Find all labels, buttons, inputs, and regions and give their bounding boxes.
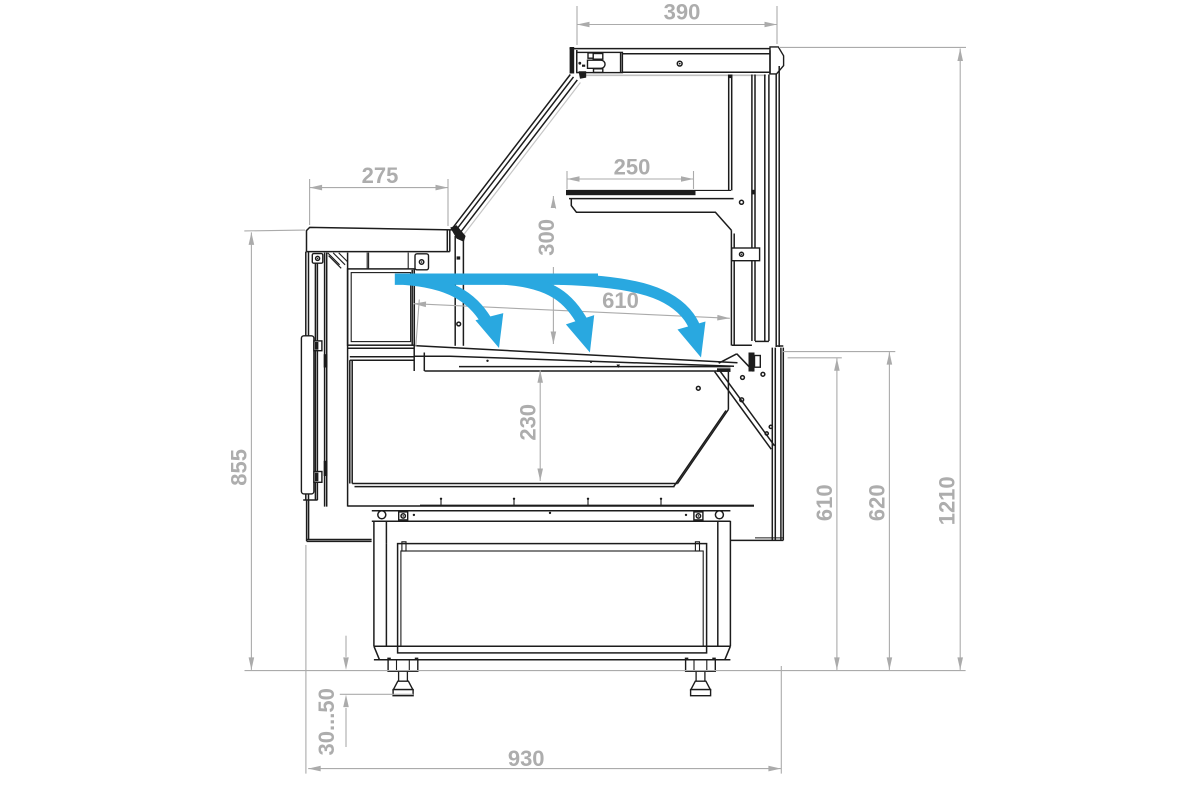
svg-text:250: 250: [614, 155, 651, 180]
svg-text:930: 930: [508, 746, 545, 771]
svg-text:300: 300: [534, 219, 559, 256]
svg-text:275: 275: [362, 163, 399, 188]
svg-text:610: 610: [812, 484, 837, 521]
svg-text:855: 855: [227, 449, 252, 486]
svg-text:620: 620: [864, 484, 889, 521]
svg-text:390: 390: [664, 0, 701, 25]
svg-text:230: 230: [516, 404, 541, 441]
svg-text:1210: 1210: [934, 476, 959, 525]
svg-text:30...50: 30...50: [314, 688, 339, 755]
